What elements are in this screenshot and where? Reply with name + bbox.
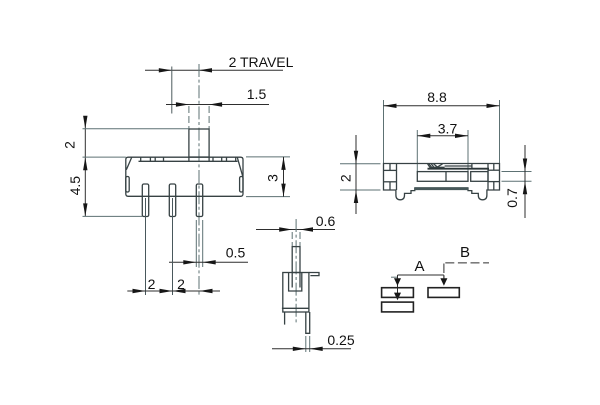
svg-text:2: 2 (177, 276, 185, 292)
svg-text:3.7: 3.7 (438, 121, 458, 137)
svg-text:0.25: 0.25 (327, 332, 354, 348)
svg-text:B: B (460, 244, 470, 261)
svg-text:0.6: 0.6 (316, 213, 336, 229)
svg-text:2: 2 (62, 141, 78, 149)
svg-text:3: 3 (265, 174, 281, 182)
svg-text:2: 2 (338, 174, 354, 182)
svg-text:2 TRAVEL: 2 TRAVEL (229, 54, 294, 70)
svg-text:1.5: 1.5 (247, 86, 267, 102)
svg-text:2: 2 (148, 276, 156, 292)
svg-text:A: A (414, 258, 424, 275)
svg-text:0.5: 0.5 (226, 245, 246, 261)
svg-text:0.7: 0.7 (504, 188, 520, 208)
svg-text:4.5: 4.5 (67, 176, 83, 196)
svg-text:8.8: 8.8 (427, 89, 447, 105)
